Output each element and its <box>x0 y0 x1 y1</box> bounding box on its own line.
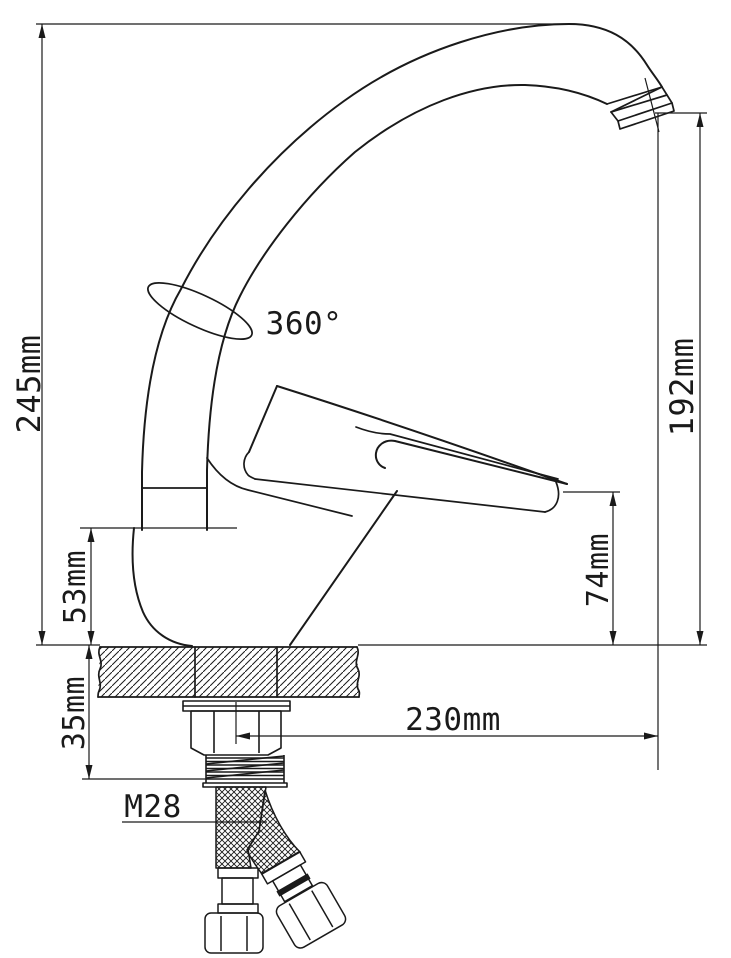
lever-underside <box>376 441 567 484</box>
dimensions: 245mm 53mm 35mm 74mm <box>10 24 707 825</box>
aerator-top-edge <box>607 87 662 104</box>
dim-handle-height: 74mm <box>563 492 620 645</box>
faucet-technical-drawing: 245mm 53mm 35mm 74mm <box>0 0 731 958</box>
label-swivel-angle: 360° <box>266 306 343 342</box>
spout-outer-curve <box>142 24 662 530</box>
arrow-left <box>236 733 250 740</box>
dim-label-spout-reach: 230mm <box>405 702 501 738</box>
arrow-down <box>88 631 95 645</box>
spout-aerator <box>607 78 674 132</box>
arrow-up <box>697 113 704 127</box>
arrow-up <box>39 24 46 38</box>
arrow-down <box>610 631 617 645</box>
arrow-down <box>697 631 704 645</box>
cap-right-bulge <box>545 482 559 512</box>
dim-label-base-height: 53mm <box>58 550 93 624</box>
swivel-ellipse <box>142 272 259 349</box>
dim-label-total-height: 245mm <box>10 335 48 434</box>
arrow-right <box>644 733 658 740</box>
hose-ferrule <box>218 868 258 878</box>
handle-lever <box>244 386 567 512</box>
base-body <box>133 458 397 646</box>
dim-base-height: 53mm <box>58 528 237 645</box>
hose-fitting-band <box>218 904 258 913</box>
arrow-up <box>88 528 95 542</box>
aerator-measure-tick <box>645 78 659 132</box>
countertop-hatch-fill <box>98 647 359 697</box>
dim-label-mounting-depth: 35mm <box>57 676 92 750</box>
label-thread-size: M28 <box>124 789 182 825</box>
arrow-up <box>86 645 93 659</box>
thread-lines <box>206 758 284 779</box>
lever-butt-edge <box>249 386 277 452</box>
dim-spout-height: 192mm <box>655 113 707 645</box>
supply-hose-vertical <box>205 787 266 953</box>
supply-hoses <box>205 787 348 953</box>
dim-label-spout-height: 192mm <box>663 338 701 437</box>
hose-diagonal-nut-facets <box>289 891 333 940</box>
threaded-shank <box>203 755 287 787</box>
hose-diagonal-stripe <box>276 873 310 896</box>
supply-hose-diagonal <box>247 790 348 951</box>
arrow-up <box>610 492 617 506</box>
lever-inner-line <box>356 427 558 479</box>
hose-fitting-body <box>222 878 253 904</box>
cap-left-bulge <box>244 452 255 479</box>
base-left-outline <box>133 528 192 646</box>
arrow-down <box>39 631 46 645</box>
dim-label-handle-height: 74mm <box>581 533 616 607</box>
faucet-technical-drawing-page: 245mm 53mm 35mm 74mm <box>0 0 731 958</box>
countertop-section <box>98 647 359 697</box>
hose-end-nut-facets <box>221 916 247 951</box>
hose-end-nut <box>205 913 263 953</box>
aerator-outline <box>611 87 672 121</box>
cap-bottom-edge <box>255 479 545 512</box>
arrow-down <box>86 765 93 779</box>
